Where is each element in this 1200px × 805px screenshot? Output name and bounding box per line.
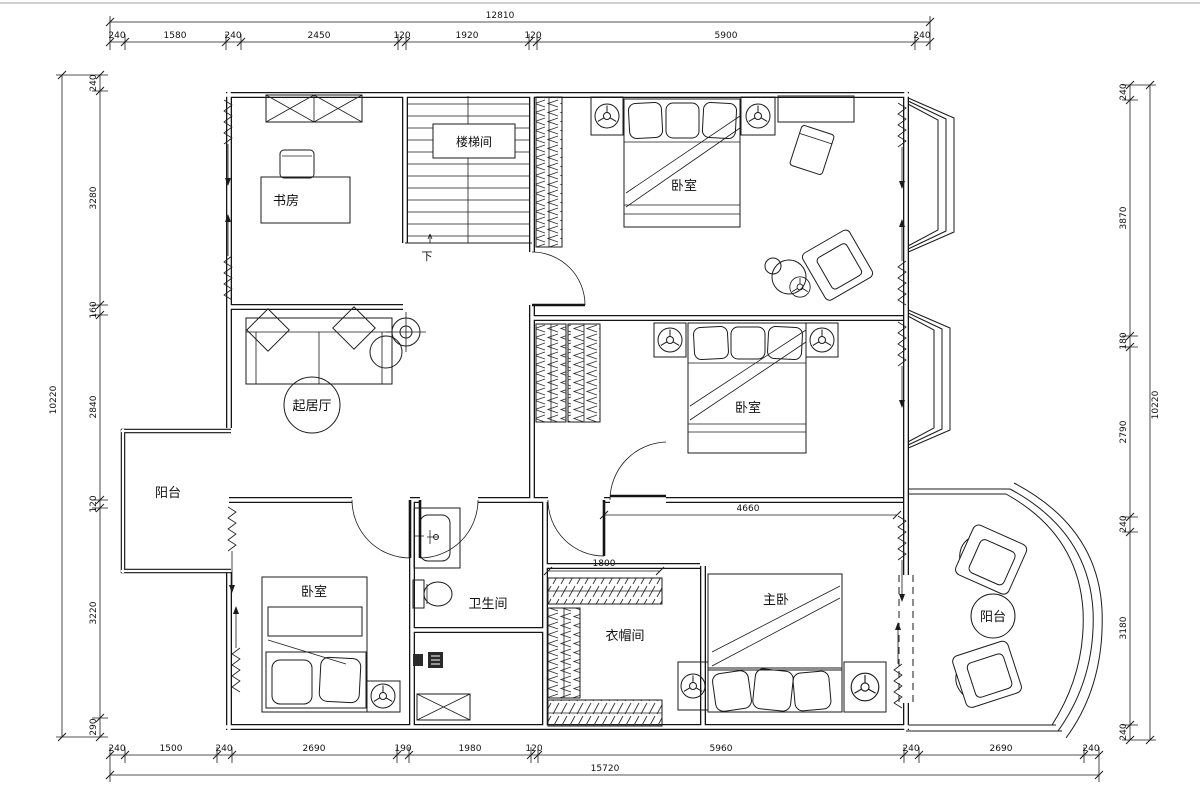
living-label: 起居厅 (292, 399, 331, 414)
dim-left-5: 3220 (89, 601, 99, 624)
dim-left-0: 240 (89, 74, 99, 91)
floor-drain-icon (413, 654, 423, 666)
dim-left-overall: 10220 (49, 385, 59, 414)
bedroom-small-label: 卧室 (301, 584, 327, 600)
dim-top-2: 240 (224, 31, 241, 41)
dim-bottom-2: 240 (215, 744, 232, 754)
dim-left-1: 3280 (89, 186, 99, 209)
dim-top-4: 120 (393, 31, 410, 41)
balcony-right-label: 阳台 (980, 610, 1006, 625)
dim-top-8: 240 (913, 31, 930, 41)
balcony-armchair-1 (951, 522, 1029, 596)
room-study: 书房 (261, 95, 362, 223)
dim-bottom-3: 2690 (303, 744, 326, 754)
bathroom-label: 卫生间 (468, 597, 507, 612)
dim-right-0: 240 (1119, 83, 1129, 100)
stairs-down-label: 下 (422, 250, 433, 263)
dimension-left: 240 3280 160 2840 120 3220 290 10220 (49, 71, 108, 741)
dim-right-3: 2790 (1119, 420, 1129, 443)
balcony-left-label: 阳台 (155, 486, 181, 501)
dim-bottom-7: 5960 (710, 744, 733, 754)
balcony-right: 阳台 (906, 483, 1102, 738)
cloakroom-label: 衣帽间 (605, 628, 644, 644)
dimension-bottom: 240 1500 240 2690 190 1980 120 5960 240 … (106, 744, 1103, 782)
stairwell: 楼梯间 下 (407, 96, 530, 263)
room-living: 起居厅 (246, 307, 426, 433)
master-label: 主卧 (763, 593, 789, 608)
dim-bottom-overall: 15720 (591, 764, 620, 774)
dim-bottom-4: 190 (394, 744, 411, 754)
room-bedroom-mid: 卧室 (536, 323, 838, 453)
dim-right-1: 3870 (1119, 206, 1129, 229)
room-bedroom-top: 卧室 (536, 96, 874, 302)
dim-top-overall: 12810 (486, 11, 515, 21)
bedroom-top-label: 卧室 (671, 178, 697, 194)
dim-top-5: 1920 (456, 31, 479, 41)
dim-top-0: 240 (108, 31, 125, 41)
balcony-left: 阳台 (121, 429, 231, 573)
dim-top-3: 2450 (308, 31, 331, 41)
dim-left-4: 120 (89, 495, 99, 512)
dim-right-6: 240 (1119, 723, 1129, 740)
balcony-armchair-2 (948, 640, 1023, 710)
dim-right-4: 240 (1119, 515, 1129, 532)
dim-bottom-9: 2690 (990, 744, 1013, 754)
floor-plan-canvas: 12810 240 1580 240 2450 120 1920 120 590… (0, 0, 1200, 805)
dim-right-overall: 10220 (1151, 390, 1161, 419)
dim-right-2: 180 (1119, 332, 1129, 349)
dim-left-3: 2840 (89, 395, 99, 418)
dim-bottom-10: 240 (1082, 744, 1099, 754)
floor-plan-svg: 12810 240 1580 240 2450 120 1920 120 590… (0, 0, 1200, 805)
dim-cloakroom-width: 1800 (593, 559, 616, 569)
dimension-top: 12810 240 1580 240 2450 120 1920 120 590… (106, 11, 934, 50)
room-cloakroom: 1800 衣帽间 (544, 559, 664, 726)
room-bathroom: 卫生间 (413, 508, 508, 720)
dim-right-5: 3180 (1119, 616, 1129, 639)
dim-top-7: 5900 (715, 31, 738, 41)
doors (352, 252, 666, 558)
dim-left-6: 290 (89, 718, 99, 735)
stairwell-label: 楼梯间 (456, 134, 492, 149)
bay-windows (906, 97, 954, 449)
dim-bottom-5: 1980 (459, 744, 482, 754)
room-master: 4660 主卧 (600, 504, 901, 712)
dim-bottom-6: 120 (525, 744, 542, 754)
dim-left-2: 160 (89, 301, 99, 318)
dim-bottom-8: 240 (902, 744, 919, 754)
dim-top-1: 1580 (164, 31, 187, 41)
bedroom-mid-label: 卧室 (735, 400, 761, 416)
dim-top-6: 120 (524, 31, 541, 41)
room-bedroom-small: 卧室 (262, 577, 400, 712)
dim-master-span: 4660 (737, 504, 760, 514)
dim-bottom-0: 240 (108, 744, 125, 754)
study-label: 书房 (273, 193, 299, 209)
dimension-right: 240 3870 180 2790 240 3180 240 10220 (1119, 81, 1161, 744)
dim-bottom-1: 1500 (160, 744, 183, 754)
